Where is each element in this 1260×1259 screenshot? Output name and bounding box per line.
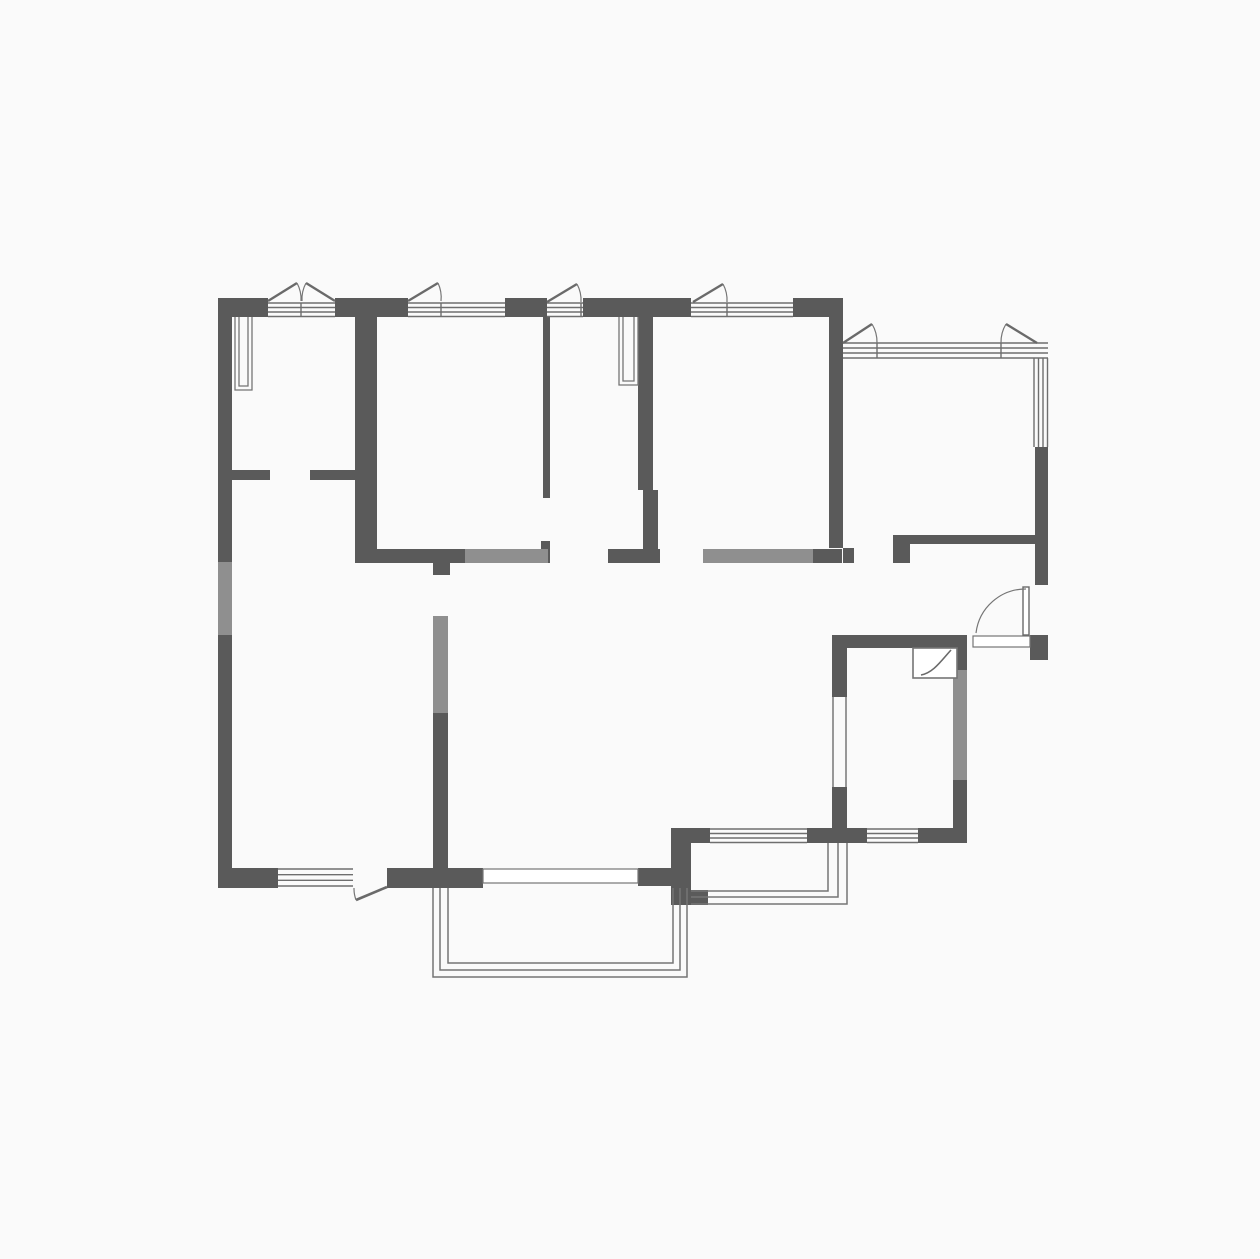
wall-segment xyxy=(505,298,547,317)
wall-segment xyxy=(671,828,710,843)
wall-segment xyxy=(905,535,1035,544)
wall-segment xyxy=(543,317,550,498)
balcony-railing-line xyxy=(691,843,847,904)
casement-leaf xyxy=(306,283,335,301)
wall-segment xyxy=(433,563,450,575)
wall-segment xyxy=(310,470,355,480)
wall-segment xyxy=(218,635,232,888)
wall-segment xyxy=(813,549,842,563)
casement-swing-arc xyxy=(438,283,441,301)
wall-segment-light xyxy=(465,549,548,563)
wall-segment xyxy=(608,549,660,563)
balcony-railings xyxy=(433,843,847,977)
balcony-door-leaf xyxy=(356,887,387,900)
floor-plan-canvas xyxy=(0,0,1260,1259)
bathroom-corner-door-box xyxy=(913,648,957,678)
wall-segment-light xyxy=(433,616,448,713)
wall-segment xyxy=(1030,635,1048,660)
wall-segment xyxy=(793,298,843,317)
wall-segment xyxy=(355,317,377,563)
casement-leaf xyxy=(1006,324,1037,343)
entry-door-arc xyxy=(976,589,1026,633)
flue-outline xyxy=(239,317,248,386)
wall-segment xyxy=(335,298,408,317)
door-swing-symbols xyxy=(354,587,1029,900)
wall-segment xyxy=(953,780,967,843)
balcony-railing-line xyxy=(691,843,828,891)
balcony-railing-line xyxy=(448,888,673,963)
wall-segment xyxy=(638,317,653,490)
casement-leaf xyxy=(547,284,577,302)
wall-segment xyxy=(832,647,847,697)
wall-segment xyxy=(355,549,465,563)
wall-opening xyxy=(483,869,638,883)
wall-segment xyxy=(232,470,270,480)
wall-opening xyxy=(973,636,1030,647)
wall-segment xyxy=(832,635,967,648)
wall-segment xyxy=(1035,447,1048,585)
flue-outline xyxy=(235,317,252,390)
casement-leaf xyxy=(408,283,438,301)
casement-swing-arc xyxy=(1001,324,1006,343)
floor-plan xyxy=(0,0,1260,1259)
casement-leaf xyxy=(693,284,723,302)
casement-swing-arc xyxy=(872,324,877,343)
wall-segment xyxy=(433,713,448,868)
flue-outline xyxy=(619,317,638,385)
wall-segment xyxy=(218,298,232,563)
flue-outline xyxy=(623,317,634,381)
walls-dark xyxy=(218,298,1048,905)
wall-segment xyxy=(643,490,658,549)
wall-segment xyxy=(843,548,854,563)
casement-leaf xyxy=(268,283,297,301)
balcony-railing-line xyxy=(691,843,838,897)
casement-swing-arc xyxy=(723,284,727,302)
balcony-railing-line xyxy=(440,888,680,970)
casement-leaf xyxy=(843,324,872,343)
entry-door-leaf xyxy=(1023,587,1029,635)
casement-swing-arc xyxy=(302,283,306,301)
balcony-door-arc xyxy=(354,888,356,900)
wall-segment-light xyxy=(218,562,232,635)
wall-segment-light xyxy=(703,549,813,563)
wall-segment xyxy=(807,828,867,843)
casement-swing-arc xyxy=(577,284,581,302)
wall-segment xyxy=(218,298,268,317)
wall-segment-light xyxy=(953,670,967,780)
wall-segment xyxy=(832,787,847,828)
wall-segment xyxy=(829,317,843,548)
window-glazing xyxy=(268,303,1048,886)
wall-segment xyxy=(893,535,910,563)
wall-segment xyxy=(387,868,483,888)
casement-swing-arc xyxy=(297,283,301,301)
walls-light xyxy=(218,549,967,780)
wall-segment xyxy=(583,298,691,317)
flue-shafts xyxy=(235,317,638,390)
wall-segment xyxy=(218,868,278,888)
